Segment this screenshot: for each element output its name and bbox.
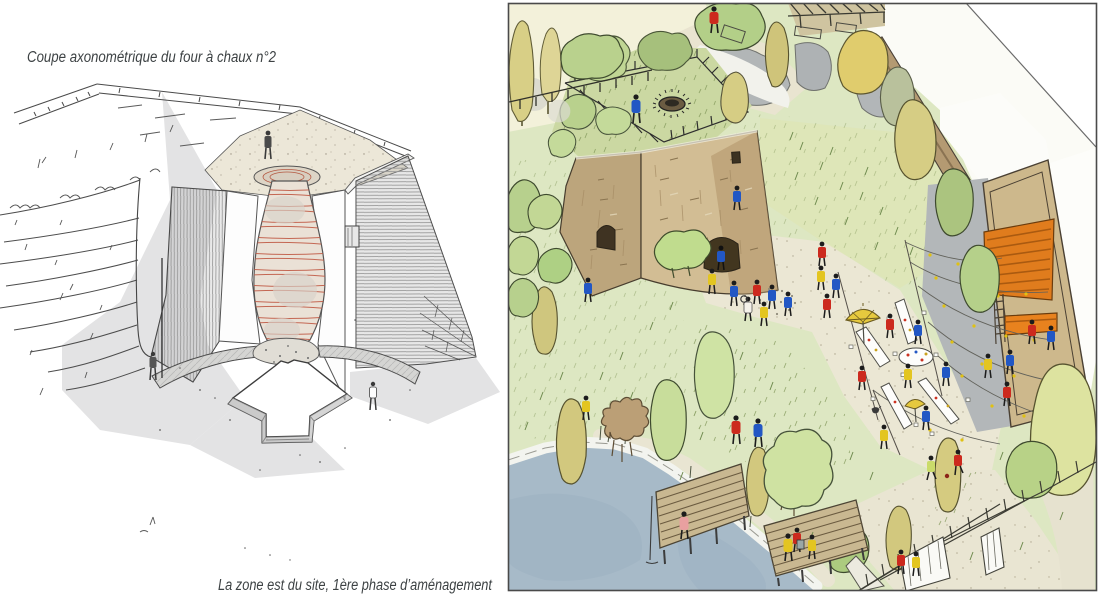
svg-text:Coupe axonométrique du four à: Coupe axonométrique du four à chaux n°2 (27, 49, 276, 66)
svg-text:La zone est du site, 1ère phas: La zone est du site, 1ère phase d’aménag… (218, 577, 493, 594)
